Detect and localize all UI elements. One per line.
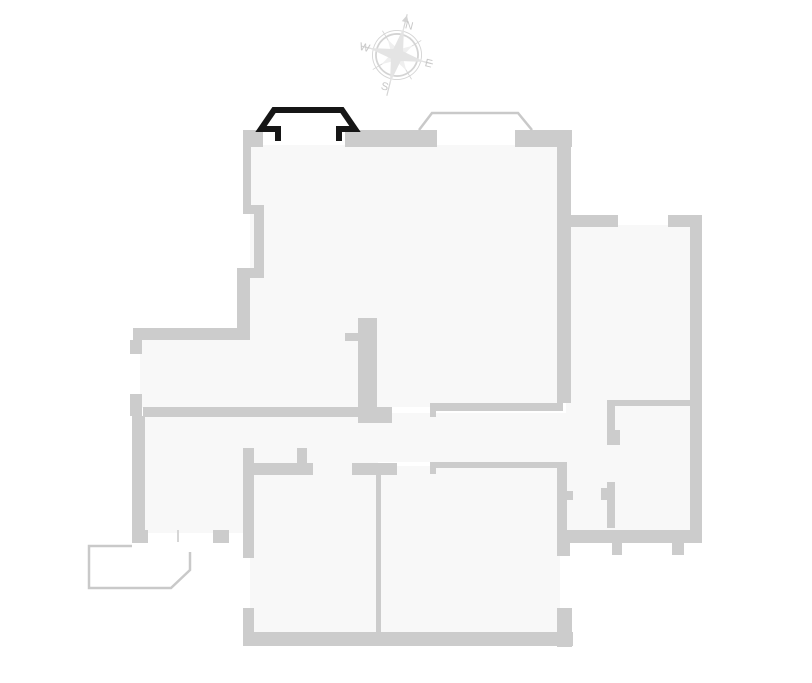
balcony-outline[interactable] [89,546,190,588]
compass-rose: N E S W [350,5,444,105]
room-living [250,145,560,407]
room-bottom-b [380,466,560,635]
compass-label-west: W [358,41,372,55]
floorplan-drawing: N E S W [0,0,812,683]
balcony-door-line [177,530,179,542]
compass-label-south: S [380,80,391,94]
room-right-top [566,225,692,405]
floorplan-canvas[interactable]: N E S W [0,0,812,683]
bay-window-top-center[interactable] [419,113,532,130]
bay-window-selected[interactable] [261,110,355,141]
room-bottom-a [250,460,378,635]
room-kitchen-wing [140,338,250,408]
room-bottom-left [143,415,243,533]
compass-label-north: N [404,19,415,33]
compass-label-east: E [424,57,435,71]
